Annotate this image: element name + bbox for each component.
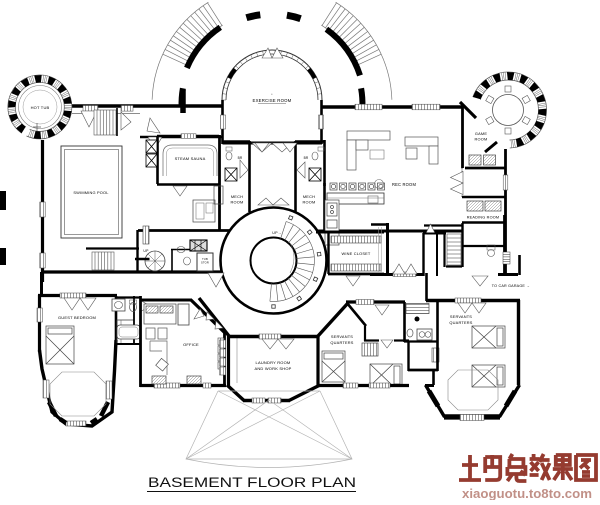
svg-text:WINE CLOSET: WINE CLOSET (341, 251, 370, 256)
svg-text:TUB: TUB (202, 257, 208, 261)
svg-text:ROOM: ROOM (303, 200, 316, 205)
svg-text:BR: BR (238, 156, 243, 160)
svg-text:STEAM SAUNA: STEAM SAUNA (175, 156, 206, 161)
svg-text:STOR: STOR (201, 261, 209, 265)
svg-text:GAME: GAME (475, 131, 487, 136)
svg-text:TO CAR GARAGE →: TO CAR GARAGE → (492, 284, 530, 288)
svg-text:BR: BR (304, 156, 309, 160)
svg-text:SERVANTS: SERVANTS (450, 314, 472, 319)
svg-text:QUARTERS: QUARTERS (330, 340, 353, 345)
svg-text:QUARTERS: QUARTERS (449, 320, 472, 325)
svg-text:ROOM: ROOM (475, 137, 488, 142)
svg-text:xiaoguotu.to8to.com: xiaoguotu.to8to.com (462, 487, 592, 500)
svg-text:SWIMMING POOL: SWIMMING POOL (73, 190, 109, 195)
svg-text:HOT TUB: HOT TUB (31, 105, 50, 110)
svg-text:UP: UP (143, 249, 149, 253)
svg-text:EXERCISE ROOM: EXERCISE ROOM (253, 98, 292, 103)
svg-text:•: • (271, 92, 272, 96)
svg-text:READING ROOM: READING ROOM (467, 216, 500, 220)
svg-text:GUEST BEDROOM: GUEST BEDROOM (58, 315, 96, 320)
svg-text:AND WORK SHOP: AND WORK SHOP (254, 366, 291, 371)
svg-text:SERVANTS: SERVANTS (331, 334, 353, 339)
svg-text:REC ROOM: REC ROOM (392, 182, 417, 187)
svg-text:MECH: MECH (231, 194, 243, 199)
svg-text:ROOM: ROOM (231, 200, 244, 205)
svg-text:BASEMENT FLOOR PLAN: BASEMENT FLOOR PLAN (148, 475, 356, 490)
svg-text:LAUNDRY ROOM: LAUNDRY ROOM (256, 360, 291, 365)
svg-text:MECH: MECH (303, 194, 315, 199)
svg-text:OFFICE: OFFICE (183, 342, 199, 347)
svg-text:UP→: UP→ (272, 231, 281, 235)
